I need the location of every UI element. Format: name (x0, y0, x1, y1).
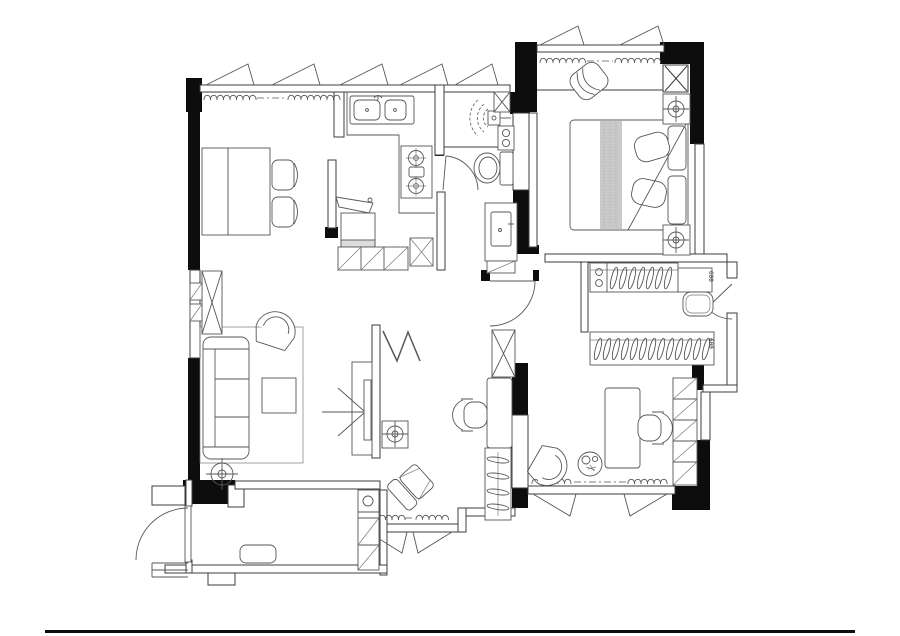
curtain (540, 58, 586, 63)
kitchen-screen (328, 160, 336, 228)
wall-study-east (697, 440, 710, 490)
window-flap (455, 64, 498, 85)
entrance-door-leaf (185, 506, 191, 562)
wall-study-east-upper (701, 392, 710, 440)
shaft-box (494, 92, 510, 112)
washer-lid (336, 197, 373, 213)
office-chair (638, 412, 672, 444)
cap-kitchen-screen (325, 227, 338, 238)
water-heater (498, 126, 514, 150)
room-kitchen (336, 92, 435, 270)
dimension-label: 600 (707, 271, 714, 282)
wall-entry-east (380, 490, 387, 575)
room-bedroom2 (382, 330, 515, 520)
corridor-door-swing (490, 281, 535, 326)
entrance-door-swing (136, 508, 188, 560)
entry-porch (152, 486, 185, 505)
office-chair (453, 399, 487, 431)
wall-bedroom-west (529, 113, 537, 247)
tv-unit (322, 362, 372, 455)
bookshelf (673, 378, 697, 485)
toilet (474, 152, 513, 185)
desk (487, 378, 512, 448)
double-bed (570, 120, 688, 230)
dining-table-leaf (202, 148, 228, 235)
wall-bedroom-south (545, 254, 727, 262)
stub-dining-kitchen (334, 92, 344, 137)
bed-runner (600, 121, 622, 229)
living-south-ledge (235, 481, 380, 489)
study-desk (605, 388, 640, 468)
room-dressing: 600 600 (590, 263, 714, 365)
dining-chair (272, 160, 294, 190)
window-flap (533, 494, 576, 516)
lounge-chair (386, 462, 436, 512)
curtain (628, 479, 667, 484)
wall-bedroom2-step-post (458, 508, 466, 532)
wall-west-lower (188, 358, 200, 480)
page-border-line (45, 630, 855, 633)
window-flap (340, 64, 388, 85)
wardrobe-lower (590, 332, 714, 365)
vanity-sink (485, 203, 517, 261)
bath-door-leaf (443, 156, 446, 190)
curtain (416, 515, 449, 520)
wall-bedroom-north (537, 45, 664, 52)
curtain (204, 95, 256, 100)
wall-east-wing-a (727, 262, 737, 278)
wall-corridor-dressing (581, 262, 588, 332)
room-dining (202, 148, 298, 235)
shoe-cabinet (358, 490, 379, 570)
room-living (190, 271, 372, 490)
window-flap (624, 494, 667, 516)
open-shelf (678, 268, 712, 292)
floor-lamp (382, 421, 408, 448)
wall-bedroom-ne-top (660, 42, 704, 64)
wall-entry-south (165, 565, 387, 573)
ottoman (683, 292, 713, 316)
dining-chair (272, 197, 294, 227)
window-flap (620, 26, 664, 45)
wall-east-connector (703, 385, 737, 392)
window-flap (400, 64, 448, 85)
window-flap (413, 532, 452, 553)
wall-bath-east-upper (513, 113, 529, 190)
tub-chair (525, 441, 574, 493)
gas-stove (401, 146, 432, 198)
wall-bedroom2-west (372, 325, 380, 458)
tub-chair (566, 59, 611, 104)
curtain (615, 58, 661, 63)
wall-north (200, 85, 510, 92)
wall-east-wing-b (727, 313, 737, 390)
wall-bedroom-nw (515, 42, 537, 112)
entry-threshold-step (208, 573, 235, 585)
floor-plan-page: 600 600 (0, 0, 900, 636)
wall-entry-west-a (186, 480, 192, 506)
headboard-cushion (668, 126, 686, 170)
wall-kitchen-bath-upper (435, 85, 444, 155)
curtain (288, 95, 340, 100)
folding-door-zigzag (383, 331, 420, 361)
window-flap (206, 64, 254, 85)
dining-table (228, 148, 270, 235)
wall-kitchen-bath-lower (437, 192, 445, 270)
wall-bedroom-east (695, 144, 704, 258)
wall-bedroom2-east-lower (512, 488, 528, 508)
window-flap (272, 64, 320, 85)
wall-study-south (528, 486, 675, 494)
wall-study-se-corner (672, 486, 710, 510)
wall-bedroom-ne-side (690, 64, 704, 144)
wall-bedroom2-study (512, 415, 528, 488)
round-side-table (578, 452, 602, 476)
vanity-cabinet (487, 261, 515, 273)
wall-west-upper (188, 112, 200, 270)
coffee-table (262, 378, 296, 413)
headboard-cushion (668, 176, 686, 224)
fridge (410, 238, 433, 266)
wardrobe-upper (590, 263, 678, 292)
dimension-label: 600 (707, 338, 714, 349)
armchair (251, 307, 300, 353)
wardrobe-vertical (485, 448, 511, 520)
room-study (525, 378, 697, 493)
washing-machine (336, 197, 375, 247)
window-flap (540, 26, 584, 45)
three-seat-sofa (203, 337, 249, 459)
wall-corner-nw (186, 78, 202, 112)
cap-door-strike (533, 270, 539, 281)
bath-door-swing (446, 156, 478, 190)
base-cabinets (338, 247, 408, 270)
doormat (240, 545, 276, 563)
hall-shaft-box (492, 330, 515, 377)
floor-plan-canvas: 600 600 (0, 0, 900, 636)
television (364, 380, 371, 440)
